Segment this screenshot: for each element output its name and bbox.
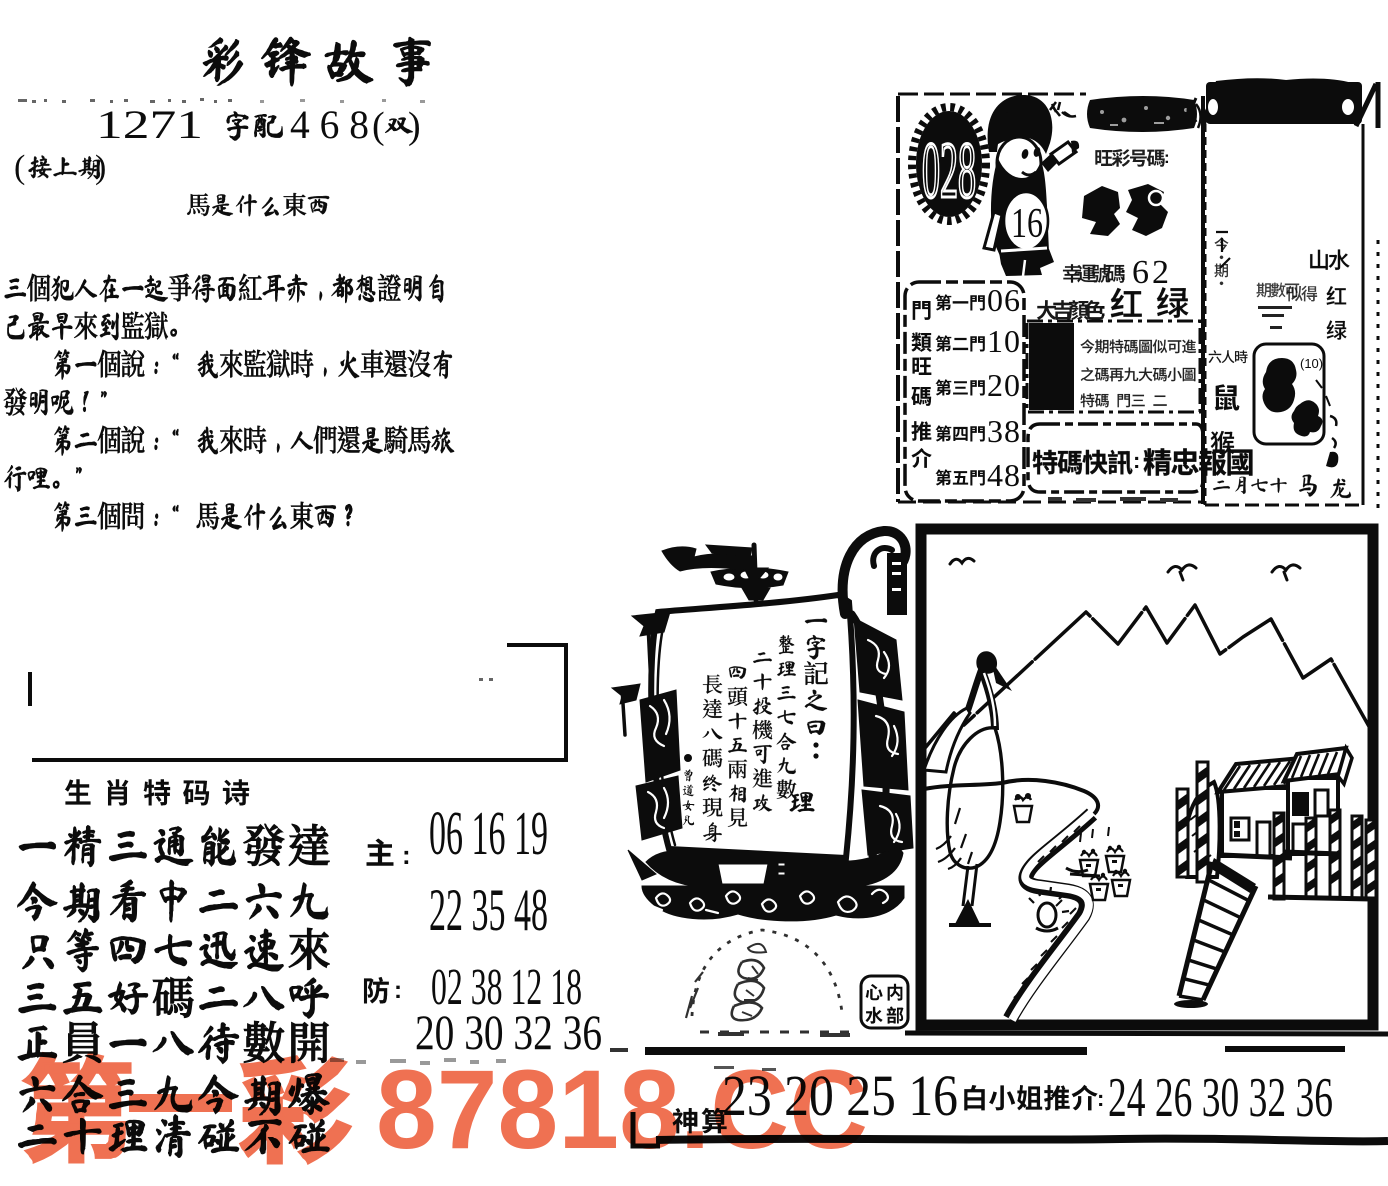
svg-text:): ) <box>408 105 421 147</box>
svg-text:(10): (10) <box>1300 356 1323 371</box>
svg-text:028: 028 <box>922 127 976 215</box>
svg-text:24 26 30 32 36: 24 26 30 32 36 <box>1108 1067 1333 1129</box>
svg-text:48: 48 <box>987 457 1021 493</box>
svg-text:16: 16 <box>1011 201 1043 247</box>
svg-text:87818.CC: 87818.CC <box>376 1047 868 1172</box>
svg-text::: : <box>1164 148 1170 167</box>
svg-text:): ) <box>95 149 106 186</box>
svg-text::: : <box>1133 448 1140 473</box>
svg-text::: : <box>1097 1086 1104 1111</box>
svg-text:(: ( <box>372 105 385 147</box>
svg-text:22 35 48: 22 35 48 <box>429 877 548 943</box>
svg-text:38: 38 <box>987 413 1021 449</box>
svg-text:10: 10 <box>987 323 1021 359</box>
svg-text::: : <box>394 977 402 1004</box>
svg-text:62: 62 <box>1132 254 1172 291</box>
svg-text:(: ( <box>14 149 25 186</box>
svg-text::: : <box>1120 264 1126 285</box>
svg-text:06 16 19: 06 16 19 <box>429 800 548 868</box>
svg-text:4 6 8: 4 6 8 <box>290 102 369 147</box>
svg-text:06: 06 <box>987 282 1021 318</box>
svg-text::: : <box>402 840 411 870</box>
svg-text:1271: 1271 <box>96 102 203 147</box>
svg-text::: : <box>1100 300 1106 321</box>
svg-text:20: 20 <box>987 367 1021 403</box>
